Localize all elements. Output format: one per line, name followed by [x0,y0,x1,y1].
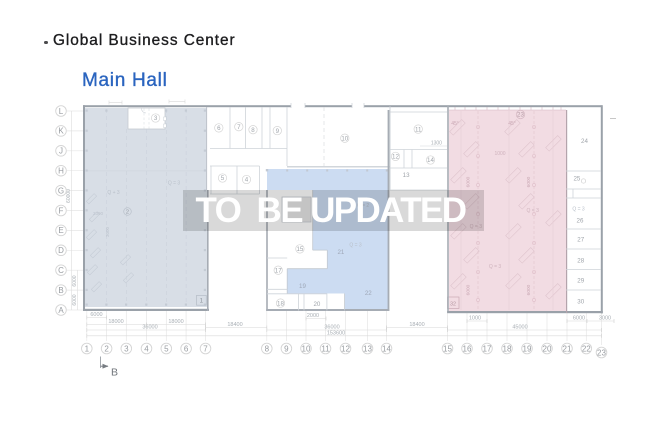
svg-text:5: 5 [221,175,225,182]
svg-text:18: 18 [503,344,512,353]
svg-text:6000: 6000 [90,312,102,318]
svg-text:18400: 18400 [409,322,424,328]
svg-text:45000: 45000 [512,325,527,331]
svg-text:12: 12 [341,344,350,353]
svg-text:C: C [58,266,64,275]
svg-text:H: H [58,167,64,176]
svg-text:10: 10 [302,344,311,353]
svg-text:2000: 2000 [307,313,319,319]
svg-text:11: 11 [321,344,330,353]
svg-text:D: D [58,246,64,255]
svg-text:Q = 3: Q = 3 [489,264,502,270]
svg-text:F: F [59,206,64,215]
svg-text:1: 1 [85,344,90,353]
svg-text:14: 14 [382,344,391,353]
svg-text:32: 32 [450,302,456,308]
svg-text:36000: 36000 [142,325,157,331]
svg-text:2390: 2390 [93,211,104,216]
svg-text:29: 29 [577,278,584,285]
svg-text:6000: 6000 [573,316,585,322]
svg-text:8: 8 [265,344,270,353]
svg-text:21: 21 [563,344,572,353]
svg-text:3000: 3000 [599,316,611,322]
svg-text:9: 9 [284,344,289,353]
svg-text:8: 8 [251,127,255,134]
svg-text:7: 7 [237,124,241,131]
svg-text:Q = 3: Q = 3 [527,208,540,214]
svg-text:13: 13 [363,344,372,353]
svg-text:30: 30 [577,298,584,305]
svg-text:7: 7 [203,344,208,353]
svg-text:23: 23 [597,348,606,357]
svg-text:6000: 6000 [72,294,78,305]
svg-text:18000: 18000 [168,319,183,325]
svg-text:60000: 60000 [66,189,72,203]
svg-text:16: 16 [463,344,472,353]
svg-text:L: L [59,107,64,116]
svg-text:3: 3 [154,115,158,122]
svg-text:15: 15 [296,246,303,253]
svg-text:5: 5 [164,344,169,353]
svg-text:3000: 3000 [105,226,110,237]
svg-text:26: 26 [577,218,584,225]
svg-text:19: 19 [523,344,532,353]
svg-text:6000: 6000 [526,176,532,187]
svg-text:Q = 3: Q = 3 [349,242,362,248]
svg-text:G: G [58,186,64,195]
svg-text:18400: 18400 [227,322,242,328]
svg-text:1300: 1300 [431,141,442,147]
svg-text:19: 19 [299,283,306,290]
svg-text:1: 1 [200,298,204,305]
svg-text:Q + 3: Q + 3 [107,190,120,196]
svg-text:1000: 1000 [469,316,481,322]
svg-text:153600: 153600 [327,331,345,337]
svg-text:22: 22 [582,344,591,353]
svg-text:6: 6 [184,344,189,353]
svg-text:27: 27 [577,237,584,244]
svg-text:14: 14 [427,157,434,164]
svg-text:13: 13 [403,172,410,179]
svg-text:E: E [58,226,63,235]
svg-text:3: 3 [124,344,129,353]
svg-text:28: 28 [577,257,584,264]
svg-text:22: 22 [365,290,372,297]
svg-text:K: K [58,127,64,136]
svg-text:11: 11 [415,126,422,133]
svg-text:6000: 6000 [526,284,532,295]
svg-text:18: 18 [277,300,284,307]
svg-text:6000: 6000 [466,284,472,295]
svg-text:25: 25 [573,175,580,182]
svg-text:2: 2 [126,210,129,216]
svg-text:J: J [59,147,63,156]
svg-text:18000: 18000 [108,319,123,325]
svg-text:Q = 3: Q = 3 [572,206,585,212]
svg-text:9: 9 [276,128,280,135]
svg-text:21: 21 [337,249,344,256]
svg-text:20: 20 [543,344,552,353]
svg-text:B: B [111,367,118,379]
svg-text:20: 20 [313,301,320,308]
svg-text:6: 6 [217,125,221,132]
svg-text:17: 17 [275,267,282,274]
svg-text:6000: 6000 [466,176,472,187]
svg-text:A: A [58,306,64,315]
svg-text:4: 4 [144,344,149,353]
svg-text:24: 24 [581,138,588,145]
svg-text:45°: 45° [508,121,516,127]
svg-text:1000: 1000 [494,151,505,157]
svg-text:2: 2 [104,344,109,353]
svg-text:Q = 3: Q = 3 [168,181,181,187]
svg-text:10: 10 [341,135,348,142]
svg-text:6000: 6000 [72,275,78,286]
svg-text:12: 12 [392,154,399,161]
svg-text:B: B [58,286,63,295]
svg-text:15: 15 [443,344,452,353]
svg-text:45°: 45° [451,121,459,127]
svg-text:17: 17 [483,344,492,353]
svg-text:4: 4 [245,177,249,184]
